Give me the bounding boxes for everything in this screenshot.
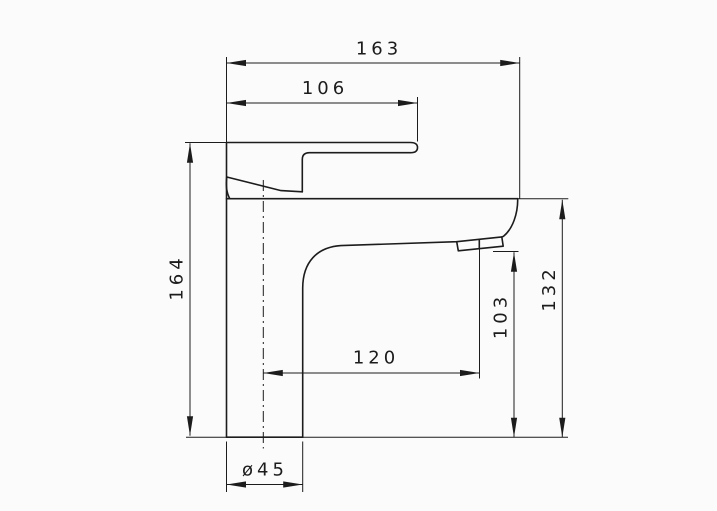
arrow-163-right (500, 60, 520, 66)
dim-label-diam45: ø45 (242, 460, 288, 481)
dimension-arrowheads (187, 60, 566, 488)
arrow-132-bottom (559, 418, 565, 438)
arrow-120-right (460, 370, 480, 376)
arrow-103-top (511, 252, 517, 271)
dim-label-103: 103 (491, 293, 512, 339)
faucet-outline (226, 143, 517, 438)
arrow-163-left (227, 60, 247, 66)
arrow-120-left (263, 370, 283, 376)
dim-label-163: 163 (356, 39, 402, 60)
arrow-164-bottom (187, 416, 193, 436)
faucet-dimension-drawing: 163 106 164 132 103 120 ø45 (0, 0, 717, 511)
arrow-106-right (398, 100, 418, 106)
faucet-spout-and-front (303, 199, 518, 438)
arrow-132-top (559, 200, 565, 220)
arrow-diam-right (283, 481, 303, 487)
arrow-diam-left (227, 481, 247, 487)
dim-label-106: 106 (302, 78, 348, 99)
dimension-lines (185, 57, 568, 492)
dimension-labels: 163 106 164 132 103 120 ø45 (167, 39, 561, 481)
arrow-103-bottom (511, 418, 517, 438)
dim-label-164: 164 (167, 254, 188, 300)
arrow-164-top (187, 143, 193, 163)
arrow-106-left (227, 100, 247, 106)
dim-label-132: 132 (539, 265, 560, 311)
dim-label-120: 120 (353, 348, 399, 369)
faucet-handle-wedge (227, 177, 302, 192)
technical-drawing-canvas: 163 106 164 132 103 120 ø45 (0, 0, 717, 511)
